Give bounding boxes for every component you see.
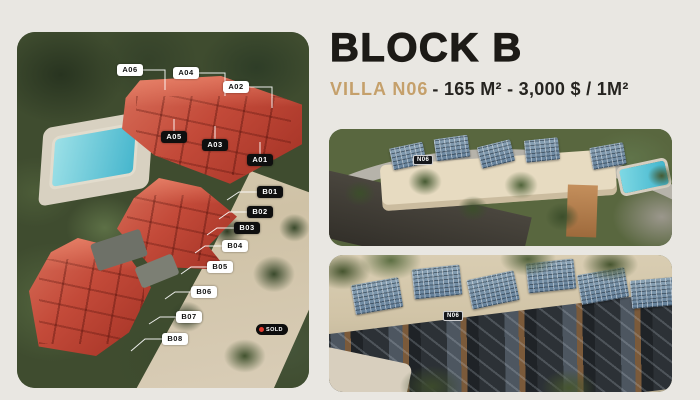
villa-subtitle: VILLA N06- 165 M² - 3,000 $ / 1M²	[330, 79, 690, 100]
sold-dot-icon	[259, 327, 264, 332]
unit-label-b08[interactable]: B08	[162, 333, 188, 345]
unit-label-b05[interactable]: B05	[207, 261, 233, 273]
unit-label-a04[interactable]: A04	[173, 67, 199, 79]
villa-marker-bottom: N06	[443, 311, 463, 321]
unit-label-b06[interactable]: B06	[191, 286, 217, 298]
villa-marker-top: N06	[413, 155, 433, 165]
villa-name: VILLA N06	[330, 79, 428, 99]
page-background: { "colors": { "background": "#e9e7e2", "…	[0, 0, 700, 400]
unit-label-a06[interactable]: A06	[117, 64, 143, 76]
header: BLOCK B VILLA N06- 165 M² - 3,000 $ / 1M…	[330, 26, 690, 100]
photo-top-right: N06	[329, 129, 672, 246]
page-title: BLOCK B	[330, 26, 690, 70]
unit-label-a01[interactable]: A01	[247, 154, 273, 166]
unit-label-a05[interactable]: A05	[161, 131, 187, 143]
villa-details: - 165 M² - 3,000 $ / 1M²	[432, 79, 628, 99]
sold-badge: SOLD	[256, 324, 288, 335]
unit-label-b02[interactable]: B02	[247, 206, 273, 218]
unit-label-a02[interactable]: A02	[223, 81, 249, 93]
palm-canopy	[329, 129, 672, 246]
unit-label-a03[interactable]: A03	[202, 139, 228, 151]
unit-label-b07[interactable]: B07	[176, 311, 202, 323]
unit-label-b04[interactable]: B04	[222, 240, 248, 252]
sold-label: SOLD	[266, 327, 283, 333]
unit-label-b01[interactable]: B01	[257, 186, 283, 198]
photo-bottom-right: N06	[329, 255, 672, 392]
greenery-patches	[329, 255, 672, 392]
unit-label-b03[interactable]: B03	[234, 222, 260, 234]
site-map-photo: SOLD A06A04A02A05A03A01B01B02B03B04B05B0…	[17, 32, 309, 388]
